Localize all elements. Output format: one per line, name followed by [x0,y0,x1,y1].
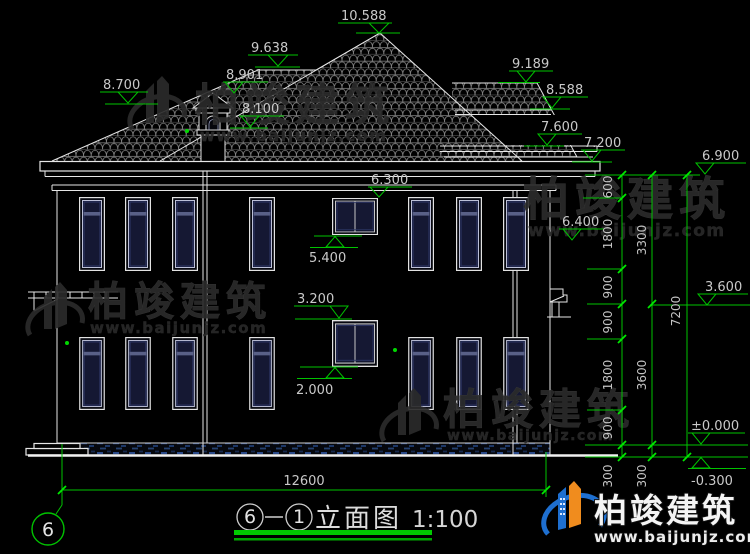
dim-label: 1800 [601,360,615,391]
svg-text:6.400: 6.400 [562,215,599,230]
svg-text:8.700: 8.700 [103,78,140,93]
square-window [333,321,378,367]
watermark-url: www.baijunjz.com [200,126,387,145]
window [173,338,197,410]
dim-label: 900 [601,417,615,440]
window [250,338,274,410]
svg-text:7.200: 7.200 [584,136,621,151]
level-marker-5400: 5.400 [309,236,362,266]
window [250,198,275,271]
watermark-left: 柏竣建筑 www.baijunjz.com [28,279,272,337]
brand-logo: 柏竣建筑 www.baijunjz.com [544,481,750,546]
dim-label: 3300 [635,225,649,256]
axis-bubble-label: 6 [42,519,54,541]
logo-tower-orange [569,481,581,528]
left-step [34,444,80,449]
axis-bubble: 6 [32,513,64,545]
dim-label: 900 [601,276,615,299]
right-corbel [547,289,571,317]
title-underline [234,530,432,535]
svg-text:-0.300: -0.300 [691,474,733,489]
dim-label: 7200 [669,296,683,327]
watermark-right: 柏竣建筑 www.baijunjz.com [523,172,731,241]
watermark-brand: 柏竣建筑 [195,80,395,131]
logo-url-text: www.baijunjz.com [594,528,750,546]
level-marker-3200: 3.200 [294,292,352,319]
svg-text:8.588: 8.588 [546,83,583,98]
svg-text:9.189: 9.189 [512,57,549,72]
plinth-and-ground [26,443,618,456]
svg-text:7.600: 7.600 [541,120,578,135]
window [409,198,434,271]
title-axis-to: 1 [293,506,305,528]
cad-elevation-screenshot: 柏竣建筑 www.baijunjz.com 柏竣建筑 www.baijunjz.… [0,0,750,554]
left-step [26,449,88,456]
svg-text:±0.000: ±0.000 [691,419,739,434]
watermark-url: www.baijunjz.com [528,221,726,241]
level-marker-minus300: -0.300 [686,457,748,489]
watermark-url: www.baijunjz.com [447,428,614,444]
title-name: 立面图 [315,504,402,534]
svg-text:10.588: 10.588 [341,9,387,24]
svg-text:5.400: 5.400 [309,251,346,266]
title-scale: 1:100 [412,507,478,533]
window [126,338,150,410]
overall-width-label: 12600 [283,474,324,489]
svg-text:3.200: 3.200 [297,292,334,307]
svg-text:2.000: 2.000 [296,383,333,398]
elevation-drawing-canvas: 柏竣建筑 www.baijunjz.com 柏竣建筑 www.baijunjz.… [0,0,750,554]
window [126,198,151,271]
svg-text:8.901: 8.901 [226,68,263,83]
plinth-band [57,443,550,455]
dim-label: 300 [635,465,649,488]
level-marker-2000: 2.000 [296,367,358,398]
level-marker-0000: ±0.000 [686,419,748,445]
level-marker-9638: 9.638 [248,41,300,67]
title-block: 6 1 立面图 1:100 [234,504,478,541]
dim-label: 600 [601,176,615,199]
title-underline-thin [234,538,432,541]
square-window [333,199,378,235]
level-marker-10588: 10.588 [338,9,400,33]
svg-text:6.900: 6.900 [702,149,739,164]
dim-label: 3600 [635,360,649,391]
dim-label: 900 [601,311,615,334]
svg-text:3.600: 3.600 [705,280,742,295]
window [80,338,104,410]
level-marker-3600: 3.600 [652,280,750,305]
svg-text:9.638: 9.638 [251,41,288,56]
watermark-url: www.baijunjz.com [90,319,267,337]
dim-label: 300 [601,465,615,488]
level-marker-6300: 6.300 [368,173,412,197]
window [173,198,198,271]
dim-label: 1800 [601,219,615,250]
level-marker-9189: 9.189 [498,57,553,83]
main-eave-band [40,162,600,172]
window [457,198,482,271]
level-marker-6900: 6.900 [696,149,746,174]
svg-text:8.100: 8.100 [242,102,279,117]
title-axis-from: 6 [244,506,256,528]
second-floor-windows [80,198,529,271]
svg-text:6.300: 6.300 [371,173,408,188]
watermark-brand: 柏竣建筑 [523,172,731,226]
window [80,198,105,271]
logo-brand-text: 柏竣建筑 [594,491,738,530]
